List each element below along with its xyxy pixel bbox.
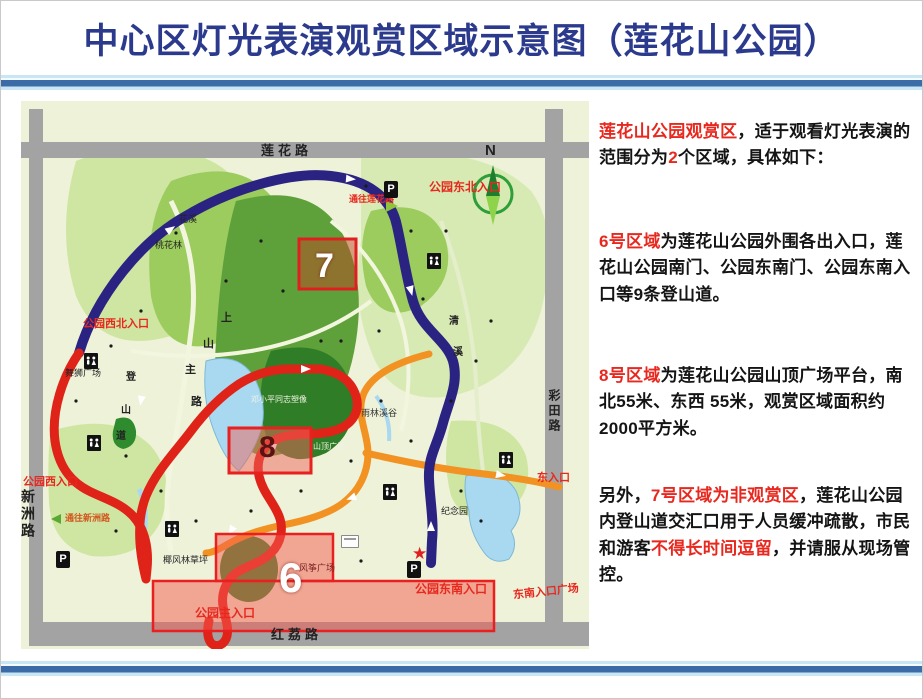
star-marker-icon: ★: [412, 545, 427, 562]
road-label-xinzhou: 新洲路: [21, 489, 35, 540]
label-northeast-entrance: 公园东北入口: [429, 181, 501, 193]
trail-char: 登: [126, 373, 136, 383]
restroom-icon: [87, 435, 101, 451]
parking-icon: P: [384, 181, 398, 198]
restroom-icon: [84, 353, 98, 369]
label-summit-square: 山顶广场: [313, 443, 345, 451]
parking-icon: P: [56, 551, 70, 568]
paragraph-zone8: 8号区域为莲花山公园山顶广场平台，南北55米、东西 55米，观赏区域面积约200…: [599, 363, 917, 442]
trail-char: 山: [121, 406, 131, 416]
road-label-hongli: 红荔路: [271, 628, 322, 641]
zone-8-number: 8: [259, 433, 276, 463]
road-label-caitian: 彩田路: [548, 389, 560, 434]
paragraph-zone7: 另外，7号区域为非观赏区，莲花山公园内登山道交汇口用于人员缓冲疏散，市民和游客不…: [599, 483, 917, 588]
parking-icon: P: [407, 561, 421, 578]
restroom-icon: [499, 452, 513, 468]
divider-bottom: [1, 659, 922, 677]
label-huaxi: 花溪: [179, 215, 197, 224]
restroom-icon: [165, 521, 179, 537]
info-panel: 莲花山公园观赏区，适于观看灯光表演的范围分为2个区域，具体如下： 6号区域为莲花…: [599, 119, 917, 619]
road-caitian: [545, 109, 563, 634]
highlight-no-lingering: 不得长时间逗留: [651, 539, 772, 558]
label-southeast-entrance: 公园东南入口: [415, 583, 487, 595]
restroom-icon: [427, 253, 441, 269]
highlight-zone8: 8号区域: [599, 366, 661, 385]
trail-char: 清: [449, 317, 459, 327]
trail-char: 溪: [453, 348, 463, 358]
label-deng-statue: 邓小平同志塑像: [251, 396, 307, 404]
highlight-zone-count: 2: [668, 148, 678, 167]
paragraph-zone6: 6号区域为莲花山公园外围各出入口，莲花山公园南门、公园东南门、公园东南入口等9条…: [599, 229, 917, 308]
highlight-zone7: 7号区域为非观赏区: [651, 486, 799, 505]
trail-char: 上: [221, 313, 232, 324]
road-label-lianhua: 莲花路: [261, 144, 312, 157]
trail-char: 路: [191, 397, 202, 408]
label-to-xinzhou-road: 通往新洲路: [65, 514, 110, 523]
compass-n-label: N: [485, 143, 496, 158]
zone-7-number: 7: [315, 249, 334, 283]
facility-icon: [341, 535, 359, 548]
label-main-entrance: 公园主入口: [195, 607, 255, 619]
label-taohualin: 桃花林: [155, 241, 182, 250]
trail-char: 主: [185, 365, 196, 376]
label-kite-square: 风筝广场: [299, 564, 335, 573]
trail-char: 山: [203, 339, 214, 350]
label-wushi-square: 舞狮广场: [65, 369, 101, 378]
trail-char: 道: [116, 432, 126, 442]
highlight-viewing-area: 莲花山公园观赏区: [599, 122, 737, 141]
highlight-zone6: 6号区域: [599, 232, 661, 251]
label-northwest-entrance: 公园西北入口: [83, 319, 149, 330]
road-xinzhou: [29, 109, 43, 646]
zone-6-box-upper: [216, 534, 333, 581]
paragraph-overview: 莲花山公园观赏区，适于观看灯光表演的范围分为2个区域，具体如下：: [599, 119, 917, 172]
park-map: 莲花路 红荔路 新洲路 彩田路 N 7 8 6 公园东北入口 通往莲花路 公园西…: [21, 101, 589, 649]
label-east-entrance: 东入口: [537, 473, 570, 484]
label-west-entrance: 公园西入口: [23, 477, 78, 488]
label-memorial-garden: 纪念园: [441, 507, 468, 516]
slide: 中心区灯光表演观赏区域示意图（莲花山公园）: [0, 0, 923, 699]
label-coconut-lawn: 椰风林草坪: [163, 556, 208, 565]
restroom-icon: [383, 484, 397, 500]
page-title: 中心区灯光表演观赏区域示意图（莲花山公园）: [1, 13, 922, 64]
divider-top: [1, 73, 922, 91]
label-rainforest-valley: 雨林溪谷: [361, 409, 397, 418]
